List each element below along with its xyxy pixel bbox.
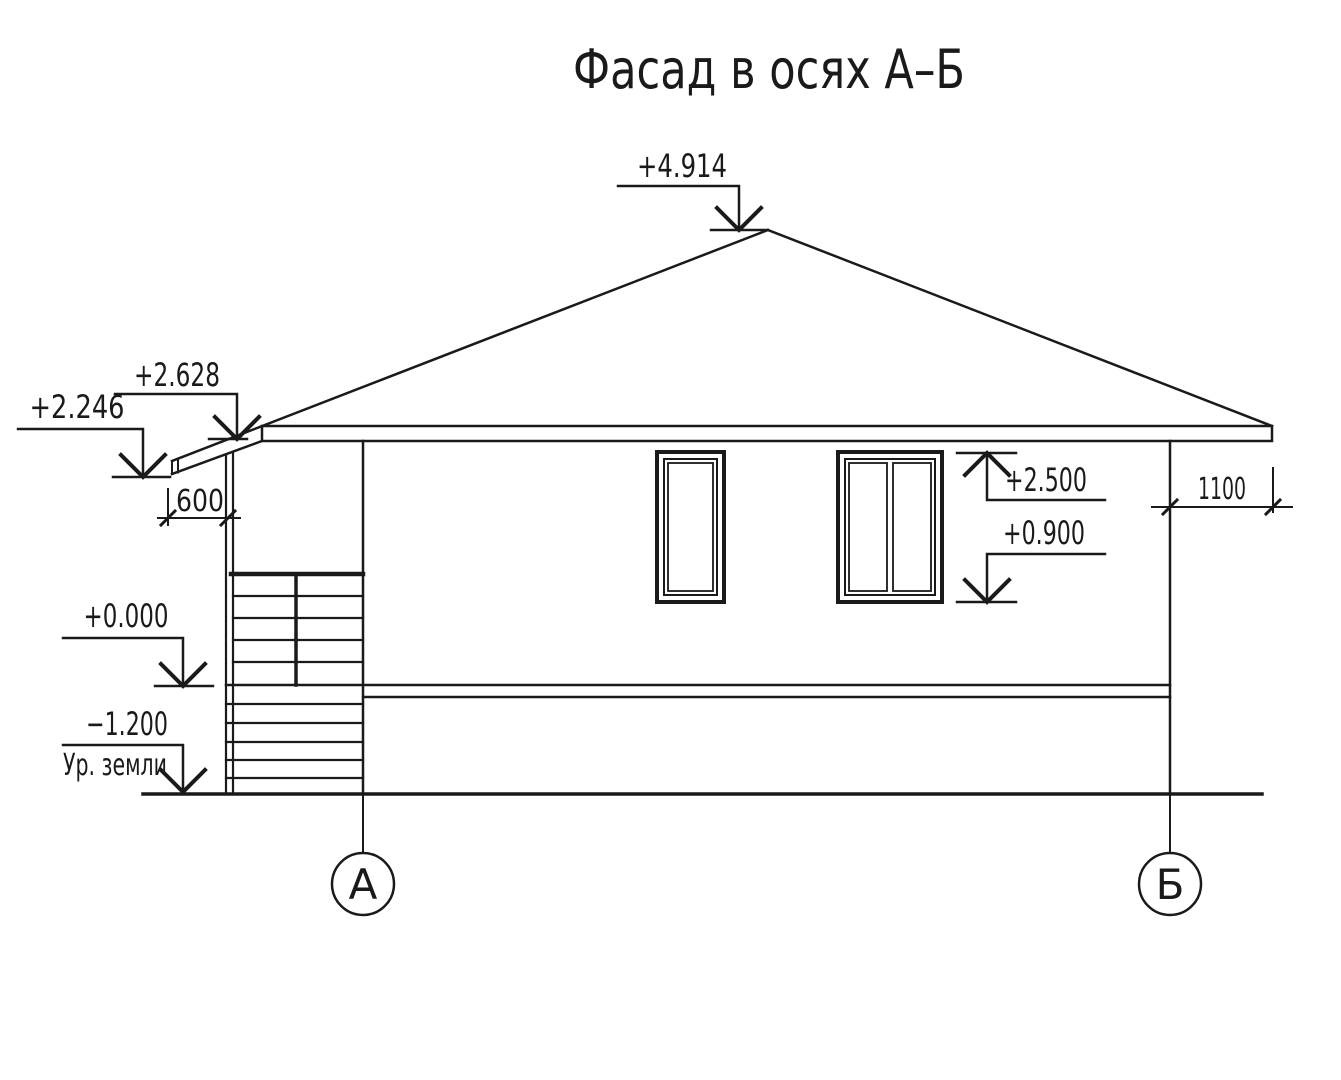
window-right-outer-frame bbox=[838, 452, 942, 602]
canopy-underside bbox=[172, 441, 262, 474]
elevation-leader bbox=[18, 429, 143, 477]
axis-b: Б bbox=[1139, 794, 1201, 915]
ground-level-caption: Ур. земли bbox=[63, 748, 167, 783]
railing-bars bbox=[233, 596, 363, 662]
elevation-mark-peak: +4.914 bbox=[618, 147, 766, 230]
dimension-canopy-overhang: 600 bbox=[158, 484, 240, 525]
porch bbox=[226, 453, 363, 794]
axis-a-label: А bbox=[349, 860, 378, 909]
window-right bbox=[838, 452, 942, 602]
elevation-leader bbox=[115, 394, 237, 439]
window-left-glass bbox=[668, 463, 713, 591]
elevation-mark-ground: −1.200 Ур. земли bbox=[63, 705, 205, 792]
axis-b-label: Б bbox=[1156, 860, 1185, 909]
elevation-mark-eave-top: +2.628 bbox=[115, 356, 259, 439]
elevation-leader bbox=[63, 638, 183, 686]
axis-a: А bbox=[332, 794, 394, 915]
window-left-outer-frame bbox=[657, 452, 724, 602]
elevation-label: +0.900 bbox=[1003, 514, 1085, 552]
facade-drawing-sheet: Фасад в осях А–Б bbox=[0, 0, 1341, 1080]
roof-right-slope bbox=[768, 230, 1272, 426]
elevation-leader bbox=[618, 186, 739, 230]
page-title: Фасад в осях А–Б bbox=[573, 38, 965, 101]
window-left-inner-frame bbox=[664, 459, 717, 595]
window-right-glass-left-pane bbox=[849, 463, 887, 591]
elevation-label: −1.200 bbox=[86, 705, 168, 743]
roof-fascia-band bbox=[262, 426, 1272, 441]
window-left bbox=[657, 452, 724, 602]
elevation-mark-floor: +0.000 bbox=[63, 597, 213, 686]
elevation-label: +2.628 bbox=[134, 356, 220, 394]
facade-drawing: Фасад в осях А–Б bbox=[0, 0, 1341, 1080]
elevation-label: +2.246 bbox=[30, 388, 125, 426]
dimension-label: 600 bbox=[176, 484, 224, 519]
elevation-leader bbox=[987, 554, 1105, 602]
elevation-label: +2.500 bbox=[1005, 461, 1087, 499]
elevation-label: +4.914 bbox=[637, 147, 727, 185]
window-right-inner-frame bbox=[845, 459, 935, 595]
dimension-label: 1100 bbox=[1198, 472, 1246, 507]
elevation-mark-canopy-tip: +2.246 bbox=[18, 388, 170, 477]
elevation-label: +0.000 bbox=[84, 597, 169, 635]
elevation-mark-window-head: +2.500 bbox=[957, 453, 1105, 500]
window-right-glass-right-pane bbox=[893, 463, 931, 591]
dimension-wall-to-eave: 1100 bbox=[1152, 468, 1292, 514]
elevation-mark-window-sill: +0.900 bbox=[957, 514, 1105, 602]
porch-steps bbox=[226, 704, 363, 778]
roof bbox=[172, 230, 1272, 474]
